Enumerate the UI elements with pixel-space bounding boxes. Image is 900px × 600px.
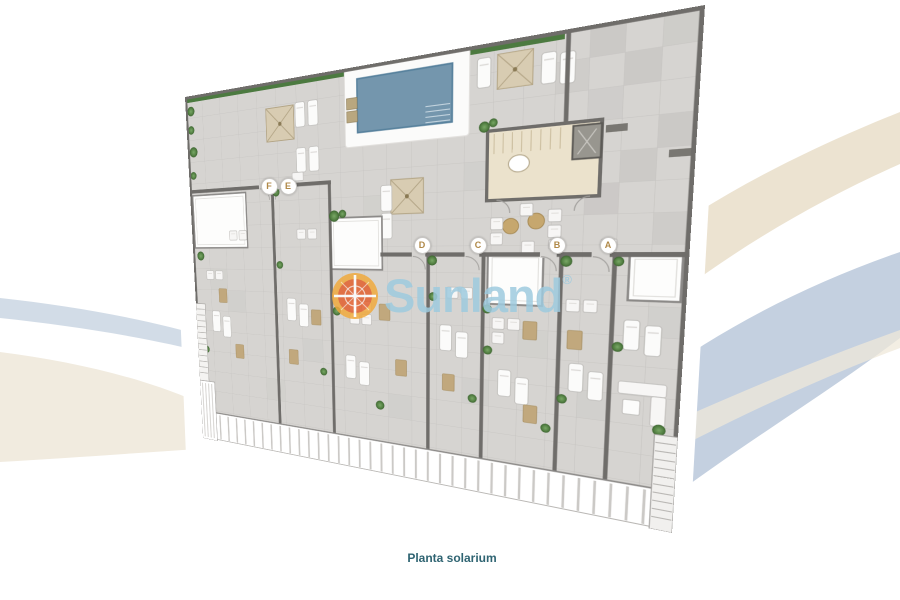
left-balcony xyxy=(200,380,218,441)
parasol-icon xyxy=(497,48,533,89)
skylight xyxy=(330,216,382,269)
unit-label-d: D xyxy=(414,237,431,254)
pool-bench xyxy=(347,111,358,123)
page: F E D C B A Sunland ® Planta solarium xyxy=(0,0,900,600)
swoosh-blue-left xyxy=(0,298,211,354)
unit-label-f: F xyxy=(261,178,278,195)
unit-label-c: C xyxy=(470,237,487,254)
unit-label-a: A xyxy=(600,237,617,254)
parasol-icon xyxy=(391,178,424,214)
swoosh-beige-left xyxy=(0,352,214,462)
wall-divider xyxy=(426,252,430,449)
sofa-table xyxy=(622,399,640,415)
skylight xyxy=(487,253,543,306)
pool-bench xyxy=(346,97,357,110)
unit-label-b: B xyxy=(549,237,566,254)
plan-caption: Planta solarium xyxy=(330,551,574,565)
parasol-icon xyxy=(266,105,295,142)
unit-label-e: E xyxy=(280,178,297,195)
